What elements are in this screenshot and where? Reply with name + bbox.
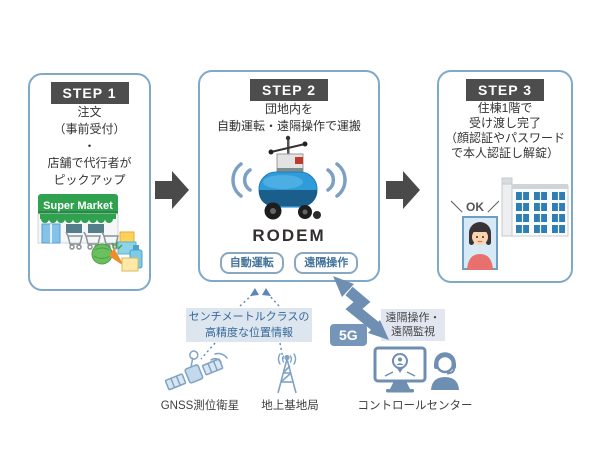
step3-line: （顔認証やパスワード [439,131,571,146]
supermarket-icon: Super Market [32,188,148,286]
resident-face-photo [462,216,498,270]
step2-line: 自動運転・遠隔操作で運搬 [200,118,378,135]
step3-line: で本人認証し解錠） [439,146,571,161]
base-station-label: 地上基地局 [255,397,325,413]
position-info-line: センチメートルクラスの [186,309,312,325]
operator-headset-icon [428,350,462,390]
remote-control-label: 遠隔操作・ 遠隔監視 [381,309,445,341]
step3-line: 受け渡し完了 [439,116,571,131]
step1-line: （事前受付） [30,121,149,138]
step1-line: 店舗で代行者が [30,155,149,172]
step1-line: ピックアップ [30,172,149,189]
gnss-satellite-icon [163,348,229,394]
svg-text:Super Market: Super Market [43,200,113,212]
mode-buttons: 自動運転 遠隔操作 [200,252,378,274]
dotted-arrowhead [262,288,271,296]
step2-header: STEP 2 [250,79,328,101]
ok-callout: ＼ OK ／ [446,198,504,215]
step2-line: 団地内を [200,101,378,118]
base-station-icon [262,352,312,394]
dotted-arrowhead [250,288,259,296]
step2-to-step3-arrow [386,171,420,209]
remote-control-line: 遠隔監視 [381,325,445,339]
remote-operation-button: 遠隔操作 [294,252,358,274]
five-g-badge: 5G [330,324,367,346]
step3-line: 住棟1階で [439,101,571,116]
rodem-logo: RODEM [200,226,378,246]
position-info-line: 高精度な位置情報 [186,325,312,341]
step1-line: ・ [30,138,149,155]
monitoring-display-icon [373,346,427,394]
step1-line: 注文 [30,104,149,121]
gnss-label: GNSS測位衛星 [155,397,245,413]
remote-control-line: 遠隔操作・ [381,311,445,325]
step1-to-step2-arrow [155,171,189,209]
delivery-robot-icon [207,134,371,226]
auto-drive-button: 自動運転 [220,252,284,274]
process-diagram: STEP 1 注文 （事前受付） ・ 店舗で代行者が ピックアップ Super … [0,0,600,450]
apartment-building-icon [500,176,570,240]
step3-header: STEP 3 [466,79,544,101]
control-center-label: コントロールセンター [353,397,477,413]
position-info-label: センチメートルクラスの 高精度な位置情報 [186,308,312,342]
step1-header: STEP 1 [51,82,129,104]
